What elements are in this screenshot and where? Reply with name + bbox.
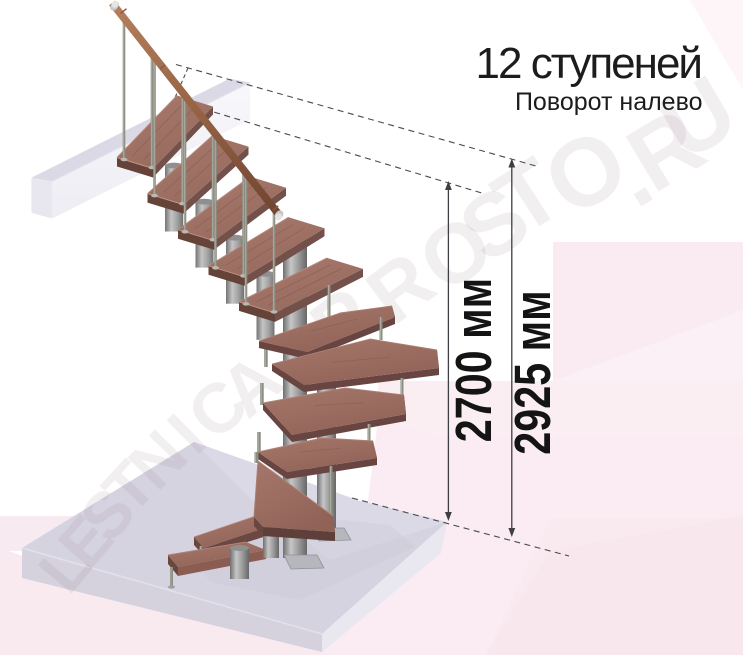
svg-text:12 ступеней: 12 ступеней: [476, 39, 701, 88]
svg-text:Поворот налево: Поворот налево: [515, 88, 703, 116]
svg-text:2925 мм: 2925 мм: [504, 290, 561, 454]
svg-text:2700 мм: 2700 мм: [445, 278, 502, 442]
